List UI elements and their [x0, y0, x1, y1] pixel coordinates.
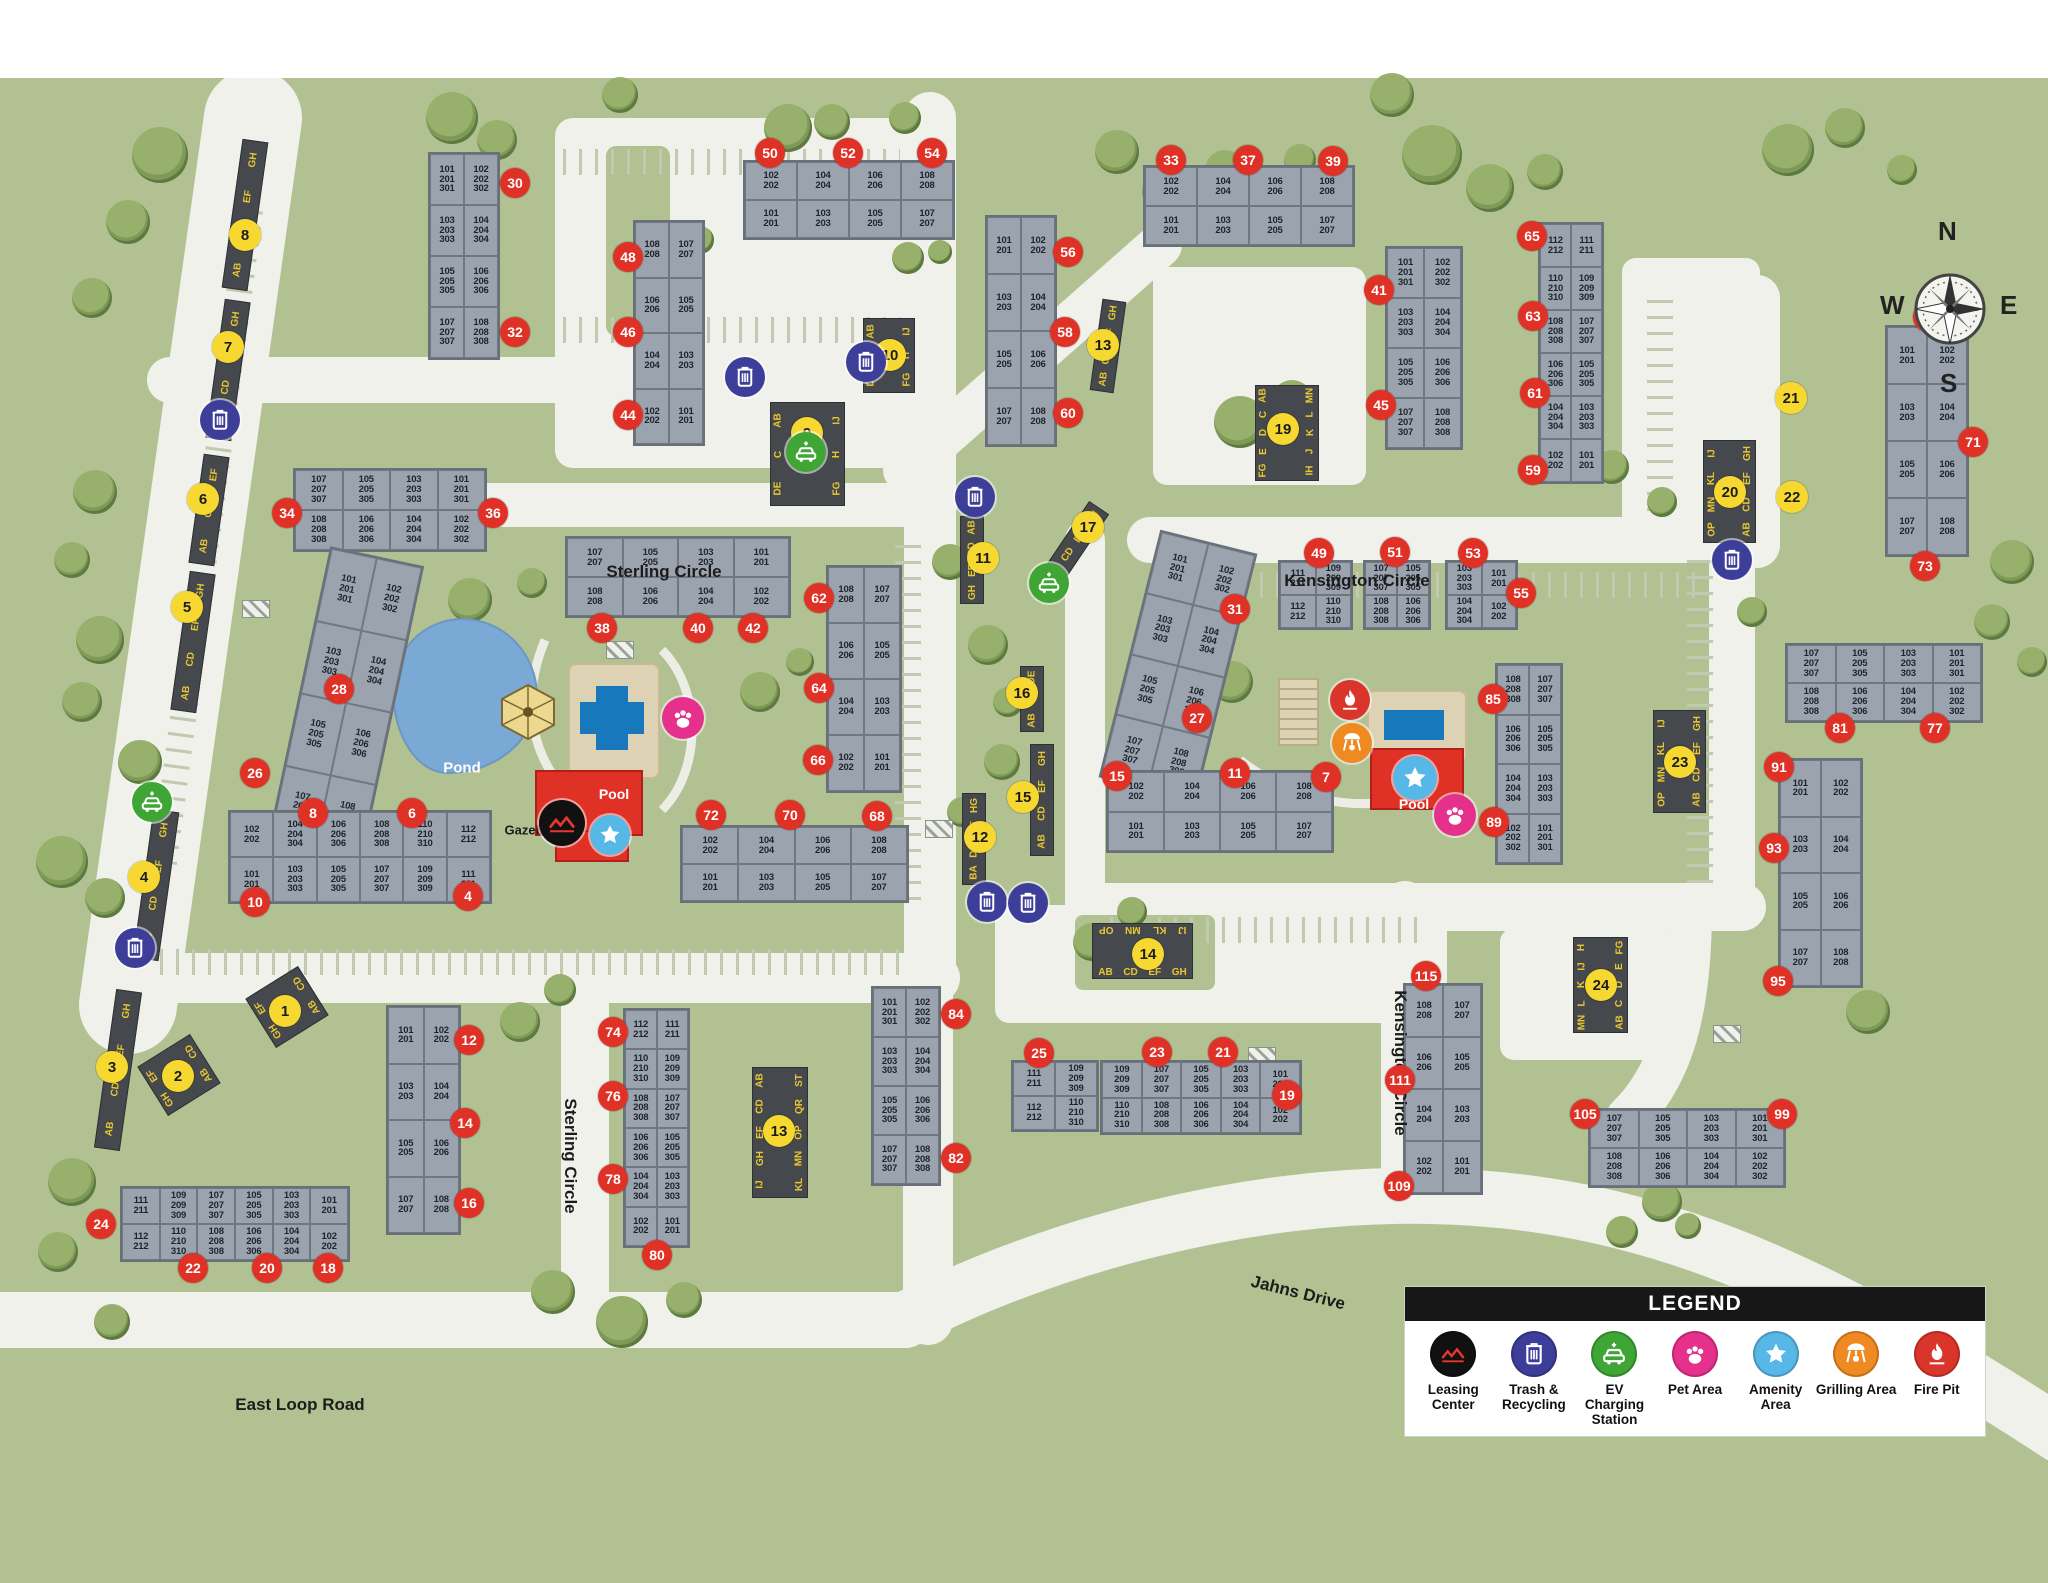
building-row: 107 207 307105 205 305103 203 303101 201… [1590, 1110, 1784, 1148]
tree [928, 240, 952, 264]
building-badge-65: 65 [1517, 221, 1547, 251]
building-row: 109 209 309107 207 307105 205 305103 203… [1102, 1062, 1300, 1098]
unit-cell: 104 204 304 [906, 1037, 939, 1086]
building-row: 107 207108 208 [388, 1177, 459, 1234]
unit-cell: 104 204 304 [273, 1224, 311, 1260]
unit-cell: 110 210 310 [1102, 1098, 1142, 1134]
unit-cell: 107 207 307 [1571, 310, 1602, 353]
unit-cell: 105 205 305 [873, 1086, 906, 1135]
star-icon [1393, 756, 1437, 800]
leasing-icon [539, 800, 585, 846]
building-row: 105 205106 206 [987, 331, 1055, 388]
building-row: 107 207108 208 [987, 388, 1055, 445]
unit-cell: 110 210 310 [625, 1049, 657, 1088]
tree [892, 242, 924, 274]
building-badge-11: 11 [1220, 758, 1250, 788]
unit-cell: 106 206 306 [1181, 1098, 1221, 1134]
unit-cell: 102 202 302 [1736, 1148, 1785, 1186]
building-badge-59: 59 [1518, 455, 1548, 485]
building-badge-30: 30 [500, 168, 530, 198]
garage-letter-column: ABCDE [771, 403, 785, 505]
garage-letter: KL [1153, 924, 1166, 935]
unit-cell: 105 205 [987, 331, 1021, 388]
building-badge-45: 45 [1366, 390, 1396, 420]
building-badge-70: 70 [775, 800, 805, 830]
tree [602, 77, 638, 113]
building-row: 105 205 305106 206 306 [1387, 348, 1461, 398]
unit-cell: 101 201 301 [438, 470, 486, 510]
compass-north: N [1938, 216, 1957, 247]
garage-letter: EF [252, 999, 268, 1016]
ev-icon [1591, 1331, 1637, 1377]
building-badge-51: 51 [1380, 537, 1410, 567]
unit-cell: 105 205 [849, 200, 901, 238]
tree [889, 102, 921, 134]
unit-cell: 103 203 [987, 274, 1021, 331]
unit-cell: 102 202 [230, 812, 273, 857]
building-row: 104 204 304102 202 [1447, 595, 1516, 628]
legend-title: LEGEND [1405, 1287, 1985, 1321]
unit-cell: 101 201 [310, 1188, 348, 1224]
garage-badge-20: 20 [1714, 476, 1746, 508]
crosswalk-hatch [242, 600, 270, 618]
unit-cell: 103 203 303 [273, 857, 316, 902]
tree [500, 1002, 540, 1042]
garage-letter: AB [1026, 713, 1037, 727]
unit-cell: 101 201 [987, 217, 1021, 274]
garage-letter: AB [1692, 792, 1703, 806]
building-badge-10: 10 [240, 887, 270, 917]
building-row: 112 212110 210 310 [1013, 1096, 1097, 1130]
unit-cell: 108 208 308 [1787, 683, 1836, 721]
garage-letter: K [1305, 429, 1316, 436]
legend-item-trash: Trash & Recycling [1494, 1331, 1575, 1413]
star-icon [1753, 1331, 1799, 1377]
building-badge-109: 109 [1384, 1171, 1414, 1201]
garage-badge-14: 14 [1132, 938, 1164, 970]
building-row: 108 208 308107 207 307 [1540, 310, 1602, 353]
unit-cell: 103 203 303 [1221, 1062, 1261, 1098]
unit-cell: 105 205 [388, 1120, 424, 1177]
unit-cell: 105 205 305 [1836, 645, 1885, 683]
unit-cell: 105 205 305 [1639, 1110, 1688, 1148]
building: 108 208107 207106 206105 205104 204103 2… [633, 220, 705, 446]
building-badge-28: 28 [324, 674, 354, 704]
crosswalk-hatch [606, 641, 634, 659]
unit-cell: 101 201 [388, 1007, 424, 1064]
building-row: 102 202101 201 [635, 389, 703, 445]
unit-cell: 106 206 306 [625, 1128, 657, 1167]
tree [1990, 540, 2034, 584]
trash-icon [1008, 883, 1048, 923]
garage-letter: C [773, 450, 784, 457]
garage-letter: FG [902, 373, 913, 387]
building-badge-46: 46 [613, 317, 643, 347]
unit-cell: 103 203 [669, 333, 703, 389]
garage-letter: EF [241, 190, 254, 204]
unit-cell: 107 207 [901, 200, 953, 238]
legend-item-label: Fire Pit [1914, 1383, 1960, 1398]
unit-cell: 105 205 [1220, 812, 1276, 852]
garage-letter: AB [755, 1074, 766, 1088]
unit-cell: 105 205 305 [657, 1128, 689, 1167]
building-badge-60: 60 [1053, 398, 1083, 428]
unit-cell: 109 209 309 [1571, 267, 1602, 310]
legend-item-star: Amenity Area [1735, 1331, 1816, 1413]
garage-letter: FG [832, 481, 843, 495]
building-row: 103 203104 204 [388, 1064, 459, 1121]
garage-letter: CD [290, 974, 307, 992]
building-row: 101 201 301102 202 302 [873, 988, 939, 1037]
garage-badge-21: 21 [1775, 382, 1807, 414]
garage-badge-23: 23 [1664, 746, 1696, 778]
legend-item-label: Pet Area [1668, 1383, 1722, 1398]
tree [1642, 1182, 1682, 1222]
tree [1095, 130, 1139, 174]
building-badge-52: 52 [833, 138, 863, 168]
building-row: 107 207 307108 208 308 [873, 1135, 939, 1184]
garage-badge-2: 2 [162, 1060, 194, 1092]
pond-label: Pond [443, 760, 481, 777]
garage-badge-6: 6 [187, 483, 219, 515]
unit-cell: 104 204 [1821, 817, 1862, 874]
trash-icon [1712, 540, 1752, 580]
building-row: 108 208 308107 207 307 [625, 1089, 688, 1128]
compass-west: W [1880, 290, 1905, 321]
garage-letter: KL [794, 1177, 805, 1190]
ev-icon [1029, 563, 1069, 603]
unit-cell: 104 204 [635, 333, 669, 389]
garage-letter: CD [1059, 545, 1076, 563]
unit-cell: 101 201 [669, 389, 703, 445]
building-badge-72: 72 [696, 800, 726, 830]
unit-cell: 108 208 [1927, 498, 1967, 555]
unit-cell: 104 204 304 [1447, 595, 1482, 628]
unit-cell: 101 201 [1443, 1141, 1481, 1193]
garage-letter: GH [967, 585, 978, 600]
leasing-icon [1430, 1331, 1476, 1377]
unit-cell: 107 207 [1443, 985, 1481, 1037]
building: 108 208107 207106 206105 205104 204103 2… [1403, 983, 1483, 1195]
tree [1887, 155, 1917, 185]
garage-letter: ST [794, 1075, 805, 1088]
building-row: 108 208 308106 206 306104 204 304102 202… [1787, 683, 1981, 721]
unit-cell: 107 207 307 [657, 1089, 689, 1128]
unit-cell: 112 212 [447, 812, 490, 857]
unit-cell: 108 208 [567, 577, 623, 616]
building-badge-53: 53 [1458, 538, 1488, 568]
unit-cell: 107 207 307 [1787, 645, 1836, 683]
building: 107 207 307105 205 305103 203 303101 201… [1785, 643, 1983, 723]
unit-cell: 108 208 308 [1590, 1148, 1639, 1186]
tree [1762, 124, 1814, 176]
unit-cell: 108 208 308 [1424, 398, 1461, 448]
unit-cell: 104 204 304 [1497, 764, 1529, 814]
unit-cell: 104 204 304 [464, 205, 498, 256]
building: 101 201102 202103 203104 204105 205106 2… [1778, 758, 1863, 988]
building-badge-68: 68 [862, 801, 892, 831]
unit-cell: 103 203 303 [873, 1037, 906, 1086]
building-badge-20: 20 [252, 1253, 282, 1283]
garage-letter: CD [219, 379, 232, 395]
tree [1825, 108, 1865, 148]
garage-badge-16: 16 [1006, 677, 1038, 709]
building-badge-105: 105 [1570, 1099, 1600, 1129]
building-badge-22: 22 [178, 1253, 208, 1283]
garage-letter: AB [1614, 1015, 1625, 1029]
unit-cell: 107 207 [1301, 206, 1353, 245]
building-badge-42: 42 [738, 613, 768, 643]
garage-badge-11: 11 [967, 542, 999, 574]
garage-badge-22: 22 [1776, 481, 1808, 513]
building: 111 211109 209 309107 207 307105 205 305… [120, 1186, 350, 1262]
building-row: 102 202104 204 304106 206 306108 208 308… [230, 812, 490, 857]
unit-cell: 104 204 [1405, 1089, 1443, 1141]
unit-cell: 105 205 [1249, 206, 1301, 245]
unit-cell: 110 210 310 [1316, 595, 1352, 628]
building-row: 104 204 304103 203 303 [625, 1167, 688, 1206]
compass-east: E [2000, 290, 2017, 321]
garage-letter: EF [1037, 780, 1048, 793]
garage-letter: IJ [755, 1180, 766, 1188]
garage-letter: CD [184, 651, 197, 667]
building-badge-89: 89 [1479, 807, 1509, 837]
trash-icon [846, 342, 886, 382]
unit-cell: 108 208 308 [1365, 595, 1397, 628]
unit-cell: 103 203 303 [1387, 298, 1424, 348]
unit-cell: 103 203 303 [430, 205, 464, 256]
building-badge-55: 55 [1506, 578, 1536, 608]
compass-graphic [1907, 266, 1993, 352]
kensington-circle-label: Kensington Circle [1284, 571, 1429, 591]
tree [1527, 154, 1563, 190]
building-row: 108 208 308106 206 306104 204 304102 202… [1590, 1148, 1784, 1186]
building: 107 207 307105 205 305103 203 303101 201… [1588, 1108, 1786, 1188]
building-row: 112 212110 210 310 [1280, 595, 1351, 628]
building-badge-32: 32 [500, 317, 530, 347]
building-row: 101 201102 202 [987, 217, 1055, 274]
unit-cell: 106 206 [795, 827, 851, 864]
unit-cell: 106 206 306 [906, 1086, 939, 1135]
building-row: 102 202104 204106 206108 208 [682, 827, 907, 864]
trash-icon [725, 357, 765, 397]
tree [740, 672, 780, 712]
unit-cell: 104 204 304 [1424, 298, 1461, 348]
unit-cell: 106 206 [1821, 873, 1862, 930]
unit-cell: 111 211 [657, 1010, 689, 1049]
building-badge-95: 95 [1763, 966, 1793, 996]
unit-cell: 103 203 [1443, 1089, 1481, 1141]
building: 107 207 307105 205 305103 203 303101 201… [293, 468, 487, 552]
building-row: 106 206 306105 205 305 [625, 1128, 688, 1167]
building-badge-40: 40 [683, 613, 713, 643]
legend-item-grill: Grilling Area [1816, 1331, 1897, 1398]
garage-letter: AB [1258, 388, 1269, 402]
tree [76, 616, 124, 664]
unit-cell: 103 203 303 [390, 470, 438, 510]
unit-cell: 101 201 301 [430, 154, 464, 205]
tree [1606, 1216, 1638, 1248]
swimming-pool [596, 686, 628, 750]
garage-letter: AB [305, 998, 322, 1016]
building-row: 111 211109 209 309107 207 307105 205 305… [122, 1188, 348, 1224]
sterling-circle-label: Sterling Circle [606, 562, 721, 582]
unit-cell: 101 201 [1145, 206, 1197, 245]
building: 102 202104 204 304106 206 306108 208 308… [228, 810, 492, 904]
garage-badge-13: 13 [763, 1115, 795, 1147]
garage-letter: H [1576, 944, 1587, 951]
building-badge-27: 27 [1182, 703, 1212, 733]
unit-cell: 106 206 [623, 577, 679, 616]
garage-letter: DE [773, 481, 784, 495]
building-badge-82: 82 [941, 1143, 971, 1173]
garage-letter: GH [755, 1151, 766, 1166]
building-badge-91: 91 [1764, 752, 1794, 782]
building: 102 202104 204106 206108 208101 201103 2… [1106, 770, 1334, 853]
building-row: 105 205106 206 [1780, 873, 1861, 930]
tree [517, 568, 547, 598]
trash-icon [967, 882, 1007, 922]
unit-cell: 108 208 308 [906, 1135, 939, 1184]
tree [2017, 647, 2047, 677]
unit-cell: 103 203 [864, 679, 900, 735]
unit-cell: 106 206 306 [343, 510, 391, 550]
fire-icon [1914, 1331, 1960, 1377]
garage-letter: IJ [1178, 924, 1186, 935]
legend-item-label: Amenity Area [1735, 1383, 1816, 1413]
building-row: 110 210 310108 208 308106 206 306104 204… [1102, 1098, 1300, 1134]
building-row: 108 208 308106 206 306 [1365, 595, 1429, 628]
building-badge-93: 93 [1759, 833, 1789, 863]
garage-letter: MN [794, 1151, 805, 1167]
unit-cell: 104 204 [797, 162, 849, 200]
garage-badge-24: 24 [1585, 969, 1617, 1001]
unit-cell: 105 205 305 [430, 256, 464, 307]
building-badge-26: 26 [240, 758, 270, 788]
garage-letter: AB [197, 1066, 214, 1084]
building-badge-8: 8 [298, 798, 328, 828]
legend-item-label: Leasing Center [1413, 1383, 1494, 1413]
unit-cell: 102 202 302 [464, 154, 498, 205]
tree [666, 1282, 702, 1318]
kensington-circle-label: Kensington Circle [1390, 990, 1410, 1135]
unit-cell: 101 201 [734, 538, 790, 577]
unit-cell: 107 207 [388, 1177, 424, 1234]
building-row: 101 201103 203105 205107 207 [1108, 812, 1332, 852]
unit-cell: 107 207 [987, 388, 1021, 445]
garage-letter: BA [968, 866, 979, 880]
tree [106, 200, 150, 244]
building-row: 101 201 301102 202 302 [1387, 248, 1461, 298]
building-row: 111 211109 209 309 [1013, 1062, 1097, 1096]
unit-cell: 107 207 [851, 864, 907, 901]
unit-cell: 105 205 [795, 864, 851, 901]
garage-letter: AB [1098, 967, 1112, 978]
garage-letter: IJ [832, 416, 843, 424]
garage-letter: GH [157, 822, 170, 838]
unit-cell: 101 201 [745, 200, 797, 238]
garage-badge-12: 12 [964, 821, 996, 853]
building-badge-50: 50 [755, 138, 785, 168]
unit-cell: 106 206 [1249, 167, 1301, 206]
garage-badge-15: 15 [1007, 781, 1039, 813]
unit-cell: 105 205 305 [1529, 715, 1561, 765]
garage-letter: AB [231, 262, 244, 278]
tree [62, 682, 102, 722]
garage-letter-column: IJHFG [830, 403, 844, 505]
building-badge-34: 34 [272, 498, 302, 528]
unit-cell: 103 203 303 [273, 1188, 311, 1224]
building-badge-66: 66 [803, 745, 833, 775]
unit-cell: 110 210 310 [1540, 267, 1571, 310]
building-row: 112 212110 210 310108 208 308106 206 306… [122, 1224, 348, 1260]
building-badge-19: 19 [1272, 1080, 1302, 1110]
unit-cell: 105 205 [669, 278, 703, 334]
building-badge-7: 7 [1311, 762, 1341, 792]
unit-cell: 108 208 [1405, 985, 1443, 1037]
crosswalk-hatch [925, 820, 953, 838]
garage-badge-8: 8 [229, 219, 261, 251]
unit-cell: 109 209 309 [657, 1049, 689, 1088]
garage-letter: GH [1106, 304, 1119, 320]
legend: LEGEND Leasing CenterTrash & RecyclingEV… [1405, 1287, 1985, 1436]
compass-south: S [1940, 368, 1957, 399]
unit-cell: 104 204 [1021, 274, 1055, 331]
building-row: 106 206 306105 205 305 [1497, 715, 1561, 765]
unit-cell: 104 204 [1164, 772, 1220, 812]
tree [48, 1158, 96, 1206]
crosswalk-hatch [1713, 1025, 1741, 1043]
building-badge-31: 31 [1220, 594, 1250, 624]
building-badge-84: 84 [941, 999, 971, 1029]
unit-cell: 104 204 304 [1221, 1098, 1261, 1134]
unit-cell: 103 203 303 [1884, 645, 1933, 683]
building-row: 104 204 304103 203 303 [1497, 764, 1561, 814]
courtyard [1278, 678, 1319, 746]
garage-letter: CD [109, 1082, 122, 1098]
unit-cell: 104 204 304 [390, 510, 438, 550]
building-row: 108 208107 207 [635, 222, 703, 278]
garage-letter: E [1258, 448, 1269, 455]
unit-cell: 108 208 [1021, 388, 1055, 445]
building: 101 201 301102 202 302103 203 303104 204… [428, 152, 500, 360]
garage-letter: L [1305, 411, 1316, 417]
building-row: 107 207 307105 205 305103 203 303101 201… [1787, 645, 1981, 683]
garage-letter: AB [866, 324, 877, 338]
unit-cell: 107 207 307 [1142, 1062, 1182, 1098]
unit-cell: 101 201 [1571, 439, 1602, 482]
unit-cell: 106 206 306 [1639, 1148, 1688, 1186]
unit-cell: 112 212 [1013, 1096, 1055, 1130]
garage-letter: IJ [1656, 719, 1667, 727]
unit-cell: 106 206 306 [1424, 348, 1461, 398]
unit-cell: 103 203 303 [657, 1167, 689, 1206]
garage-letter: EF [144, 1067, 160, 1084]
unit-cell: 107 207 [1276, 812, 1332, 852]
building-row: 108 208107 207 [1405, 985, 1481, 1037]
unit-cell: 106 206 [1021, 331, 1055, 388]
unit-cell: 104 204 [738, 827, 794, 864]
unit-cell: 107 207 307 [1529, 665, 1561, 715]
unit-cell: 107 207 307 [873, 1135, 906, 1184]
garage-letter: J [1305, 449, 1316, 455]
unit-cell: 105 205 305 [343, 470, 391, 510]
building-row: 104 204103 203 [1405, 1089, 1481, 1141]
unit-cell: 108 208 [1821, 930, 1862, 987]
ev-icon [132, 782, 172, 822]
unit-cell: 112 212 [122, 1224, 160, 1260]
garage-letter: GH [1037, 751, 1048, 766]
